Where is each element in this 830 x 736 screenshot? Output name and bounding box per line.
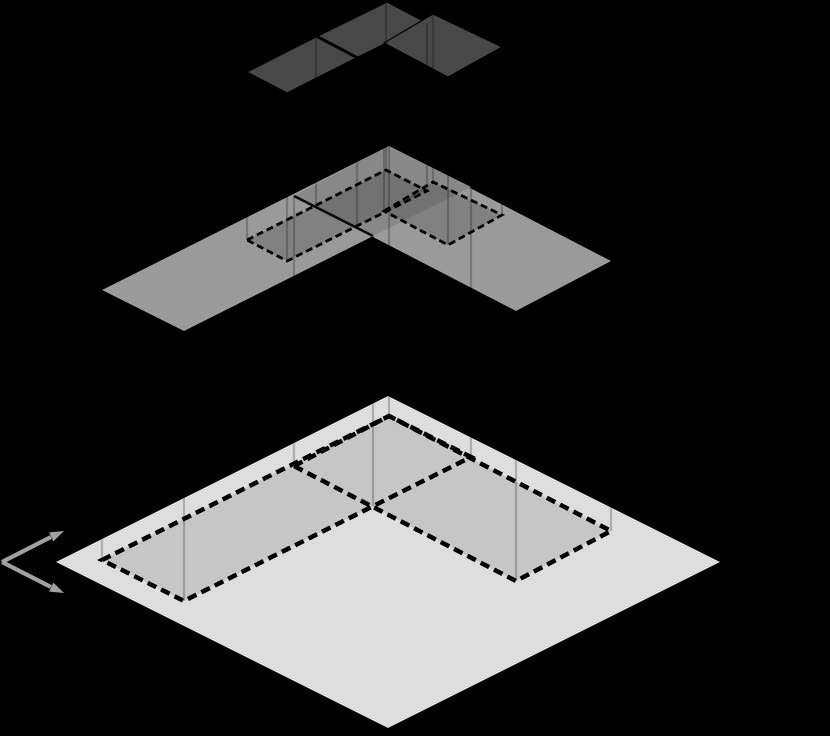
axis-arrow-head-up — [49, 531, 64, 541]
axis-arrow-head-down — [49, 583, 64, 593]
isometric-grid-hierarchy-diagram — [0, 0, 830, 736]
figure-canvas — [0, 0, 830, 736]
axis-arrow-shaft-down — [2, 562, 51, 587]
axis-arrow-shaft-up — [2, 537, 51, 562]
